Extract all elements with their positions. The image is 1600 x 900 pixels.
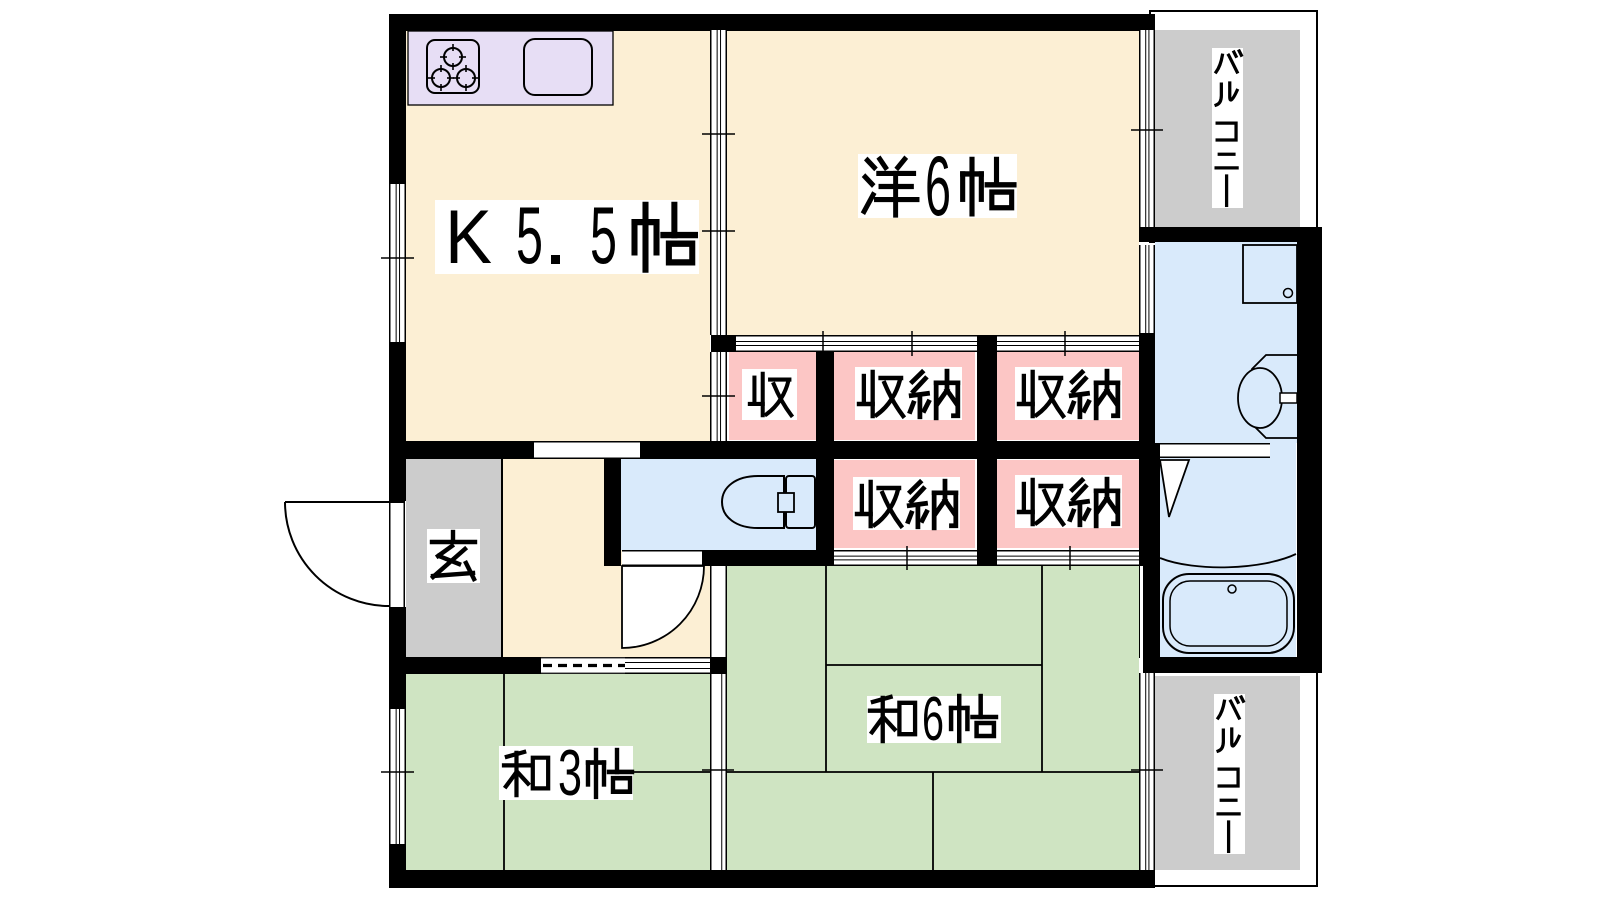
svg-text:3: 3 <box>558 736 582 809</box>
svg-text:6: 6 <box>922 685 944 754</box>
svg-text:K: K <box>445 195 492 280</box>
svg-text:5: 5 <box>516 191 543 281</box>
svg-text:5: 5 <box>590 191 617 281</box>
svg-text:6: 6 <box>925 139 951 233</box>
